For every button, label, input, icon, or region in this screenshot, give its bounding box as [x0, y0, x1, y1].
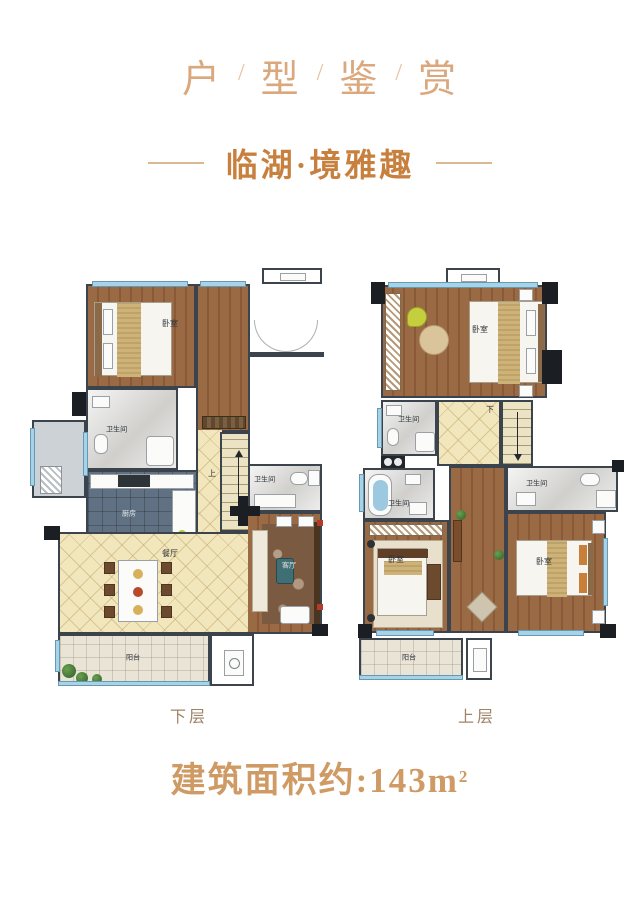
- sink-icon: [409, 502, 427, 515]
- room-label-kitchen: 厨房: [122, 510, 136, 517]
- wall-segment: [542, 282, 558, 304]
- stairs-arrow-icon: [235, 450, 243, 457]
- bed: [516, 540, 592, 596]
- room-bathroom1: [86, 388, 178, 470]
- room-bathroom1-up: [381, 400, 437, 456]
- entry-door-arc: [286, 320, 318, 352]
- floor-plan-upper: 卧室 卫生间 下 卫生间: [356, 268, 634, 688]
- floor-plan-lower: 卧室 卫生间 厨房 餐厅: [30, 268, 335, 688]
- balcony-window: [58, 681, 210, 686]
- room-label-bathroom1: 卫生间: [106, 426, 127, 433]
- dresser: [427, 564, 441, 600]
- title-char: 鉴: [339, 48, 379, 103]
- armchair: [276, 516, 292, 527]
- cabinet: [453, 520, 462, 562]
- window: [603, 538, 608, 606]
- subtitle: 临湖·境雅趣: [0, 140, 640, 186]
- room-label-bedroom-right: 卧室: [536, 558, 552, 566]
- utility-nook: [210, 634, 254, 686]
- window: [30, 428, 35, 486]
- plate: [133, 587, 143, 597]
- title-char: 型: [261, 48, 301, 103]
- room-bedroom-left: [363, 520, 449, 633]
- window: [518, 630, 584, 636]
- wall-segment: [542, 350, 562, 384]
- chair: [104, 606, 115, 618]
- room-bathroom3-up: [506, 466, 618, 512]
- shower-icon: [596, 490, 616, 508]
- shower-icon: [146, 436, 174, 466]
- doormat: [202, 416, 246, 429]
- room-label-bathroom3-up: 卫生间: [526, 480, 547, 487]
- socket-marker: [317, 604, 323, 610]
- ac-unit-icon: [280, 273, 306, 281]
- pillow: [526, 348, 536, 374]
- sink-icon: [516, 492, 536, 506]
- stairs-down: [501, 400, 533, 466]
- room-label-living: 客厅: [282, 562, 296, 569]
- headboard: [588, 543, 593, 595]
- nightstand: [519, 289, 533, 301]
- tv-cabinet: [314, 522, 320, 626]
- wall-segment: [358, 624, 372, 638]
- window: [55, 640, 60, 672]
- toilet-icon: [405, 474, 421, 485]
- nightstand: [519, 385, 533, 397]
- caption-upper-floor: 上层: [458, 703, 496, 727]
- stairs-arrow-line: [517, 412, 518, 456]
- wardrobe: [369, 524, 443, 536]
- plant-icon: [456, 510, 466, 520]
- window: [359, 474, 364, 512]
- chair: [161, 562, 172, 574]
- plant-icon: [62, 664, 76, 678]
- nightstand: [592, 520, 605, 534]
- room-living: [248, 512, 322, 634]
- ac-platform: [262, 268, 322, 284]
- bathtub-icon: [368, 474, 392, 516]
- room-label-stairs-up: 上: [208, 470, 216, 478]
- hatch-area: [40, 466, 62, 494]
- nightstand: [592, 610, 605, 624]
- pillow: [579, 573, 587, 593]
- lounge-chair: [407, 307, 427, 327]
- title-slash: /: [395, 60, 402, 87]
- speaker-icon: [367, 540, 375, 548]
- shower-icon: [415, 432, 435, 452]
- utility-nook: [466, 638, 492, 680]
- washer-dial: [384, 458, 392, 466]
- speaker-icon: [367, 614, 375, 622]
- room-label-balcony-lower: 阳台: [126, 654, 140, 661]
- room-label-bathroom1-up: 卫生间: [398, 416, 419, 423]
- blanket: [117, 303, 141, 377]
- wall-segment: [612, 460, 624, 472]
- toilet-icon: [580, 473, 600, 486]
- page: 户 / 型 / 鉴 / 赏 临湖·境雅趣 卧室: [0, 0, 640, 920]
- room-bedroom-right: [506, 512, 606, 633]
- appliance-icon: [224, 650, 244, 676]
- subtitle-line-left: [148, 162, 204, 164]
- lightwell: [32, 420, 86, 498]
- chair: [104, 562, 115, 574]
- washer-dial: [394, 458, 402, 466]
- toilet-icon: [387, 428, 399, 446]
- window: [377, 408, 382, 448]
- hallway: [196, 284, 250, 432]
- window: [376, 630, 434, 636]
- sink-icon: [308, 470, 320, 486]
- entry-door-arc: [254, 320, 286, 352]
- title-slash: /: [238, 60, 245, 87]
- wall-segment: [238, 496, 248, 526]
- plate: [133, 605, 143, 615]
- pillow: [526, 310, 536, 336]
- round-table: [419, 325, 449, 355]
- rug: [466, 591, 497, 622]
- socket-marker: [317, 520, 323, 526]
- pillow: [103, 343, 113, 369]
- pillow: [579, 545, 587, 565]
- page-title: 户 / 型 / 鉴 / 赏: [0, 48, 640, 103]
- stairs-arrow-icon: [514, 454, 522, 461]
- room-label-bedroom-master: 卧室: [472, 326, 488, 334]
- room-label-dining: 餐厅: [162, 550, 178, 558]
- wardrobe: [385, 293, 401, 391]
- plate: [133, 569, 143, 579]
- dining-table: [118, 560, 158, 622]
- subtitle-text: 临湖·境雅趣: [226, 140, 415, 186]
- bed: [469, 301, 543, 383]
- room-label-bathroom2-up: 卫生间: [388, 500, 409, 507]
- toilet-icon: [290, 472, 308, 485]
- stove-icon: [118, 475, 150, 487]
- wall-segment: [600, 624, 616, 638]
- entry-wall: [250, 352, 324, 357]
- area-text: 建筑面积约:143m2: [0, 752, 640, 803]
- room-label-stairs-down: 下: [486, 406, 494, 414]
- room-bathroom2: [248, 464, 322, 512]
- room-label-bathroom2: 卫生间: [254, 476, 275, 483]
- chair: [161, 606, 172, 618]
- window: [200, 281, 246, 287]
- blanket: [498, 302, 520, 384]
- plant-icon: [494, 550, 504, 560]
- chaise: [280, 606, 310, 624]
- bed: [94, 302, 172, 376]
- wall-segment: [371, 282, 385, 304]
- armchair: [298, 516, 314, 527]
- window: [83, 432, 88, 476]
- area-superscript: 2: [459, 767, 470, 786]
- balcony-window: [359, 675, 463, 680]
- title-slash: /: [317, 60, 324, 87]
- wall-segment: [72, 392, 86, 416]
- room-bedroom-master: [381, 285, 547, 398]
- chair: [104, 584, 115, 596]
- headboard: [95, 303, 102, 377]
- window: [388, 282, 538, 288]
- room-label-bedroom: 卧室: [162, 320, 178, 328]
- title-char: 户: [182, 48, 222, 103]
- room-bathroom2-up: [363, 468, 435, 520]
- subtitle-line-right: [436, 162, 492, 164]
- sink-icon: [92, 396, 110, 408]
- wall-segment: [312, 624, 328, 636]
- appliance-icon: [473, 648, 487, 672]
- window: [92, 281, 188, 287]
- hall-tile: [196, 430, 222, 534]
- bathtub-icon: [254, 494, 296, 508]
- bathtub-water: [373, 480, 388, 511]
- toilet-icon: [94, 434, 108, 454]
- pillow: [103, 309, 113, 335]
- wall-segment: [44, 526, 60, 540]
- room-label-bedroom-left: 卧室: [388, 556, 404, 564]
- appliance-dial: [229, 658, 240, 669]
- room-label-balcony-upper: 阳台: [402, 654, 416, 661]
- area-value: 建筑面积约:143m: [171, 761, 459, 800]
- title-char: 赏: [418, 48, 458, 103]
- caption-lower-floor: 下层: [170, 703, 208, 727]
- washer-icon: [381, 456, 405, 468]
- sofa: [252, 530, 268, 612]
- ac-unit-icon: [461, 274, 487, 282]
- chair: [161, 584, 172, 596]
- blanket: [547, 541, 567, 597]
